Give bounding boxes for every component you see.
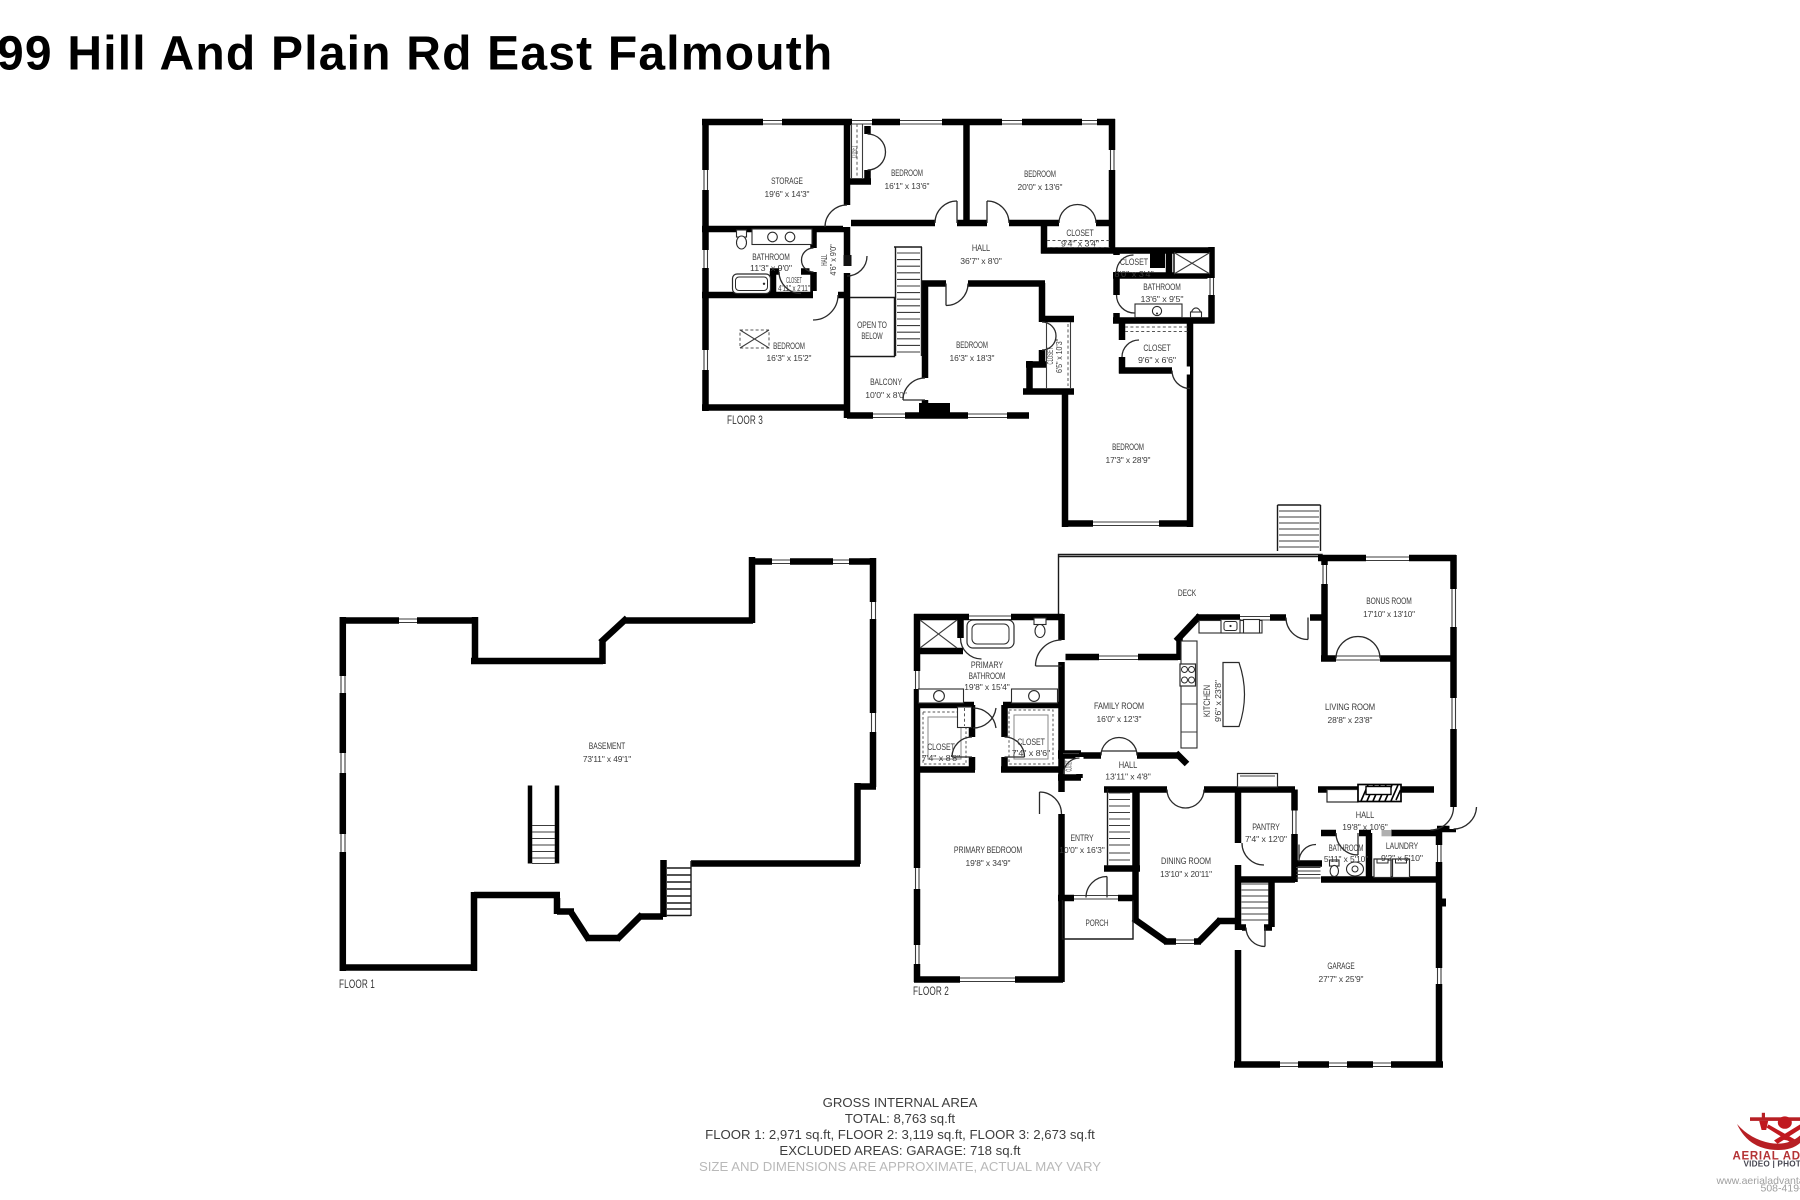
svg-text:17'10" x 13'10": 17'10" x 13'10"	[1363, 609, 1415, 619]
svg-text:5'11" x 5'10": 5'11" x 5'10"	[1324, 854, 1368, 864]
svg-text:7'4" x 8'8": 7'4" x 8'8"	[922, 753, 960, 763]
svg-text:4'6" x 9'0": 4'6" x 9'0"	[828, 244, 838, 275]
svg-text:19'8" x 34'9": 19'8" x 34'9"	[966, 858, 1011, 868]
svg-text:9'6" x 23'8": 9'6" x 23'8"	[1213, 680, 1223, 722]
svg-text:19'8" x 15'4": 19'8" x 15'4"	[964, 682, 1009, 692]
svg-text:CLOSET: CLOSET	[1066, 228, 1094, 238]
svg-text:508-419-61: 508-419-61	[1761, 1183, 1800, 1195]
svg-text:28'8" x 23'8": 28'8" x 23'8"	[1328, 715, 1373, 725]
svg-text:BALCONY: BALCONY	[870, 377, 902, 387]
svg-text:HALL: HALL	[1356, 810, 1374, 820]
svg-text:TOTAL: 8,763 sq.ft: TOTAL: 8,763 sq.ft	[845, 1111, 956, 1126]
svg-text:10'0" x 8'0": 10'0" x 8'0"	[865, 390, 906, 400]
svg-text:13'10" x 20'11": 13'10" x 20'11"	[1160, 869, 1212, 879]
svg-text:19'6" x 14'3": 19'6" x 14'3"	[765, 189, 810, 199]
svg-text:9'2" x 5'10": 9'2" x 5'10"	[1381, 853, 1423, 863]
svg-text:HALL: HALL	[1119, 760, 1137, 770]
svg-text:ENTRY: ENTRY	[1071, 833, 1094, 843]
svg-text:LAUNDRY: LAUNDRY	[1386, 841, 1418, 851]
svg-text:FAMILY ROOM: FAMILY ROOM	[1094, 701, 1144, 711]
svg-text:CLOSET: CLOSET	[1017, 737, 1045, 747]
svg-text:BASEMENT: BASEMENT	[589, 741, 626, 751]
svg-text:8'0" x 3'4": 8'0" x 3'4"	[1114, 269, 1153, 279]
svg-text:27'7" x 25'9": 27'7" x 25'9"	[1319, 974, 1364, 984]
svg-text:PANTRY: PANTRY	[1252, 822, 1280, 832]
svg-text:19'8" x 10'6": 19'8" x 10'6"	[1342, 822, 1387, 832]
svg-text:BONUS ROOM: BONUS ROOM	[1366, 596, 1412, 606]
svg-text:9'4" x 3'4": 9'4" x 3'4"	[1061, 239, 1099, 249]
svg-text:KITCHEN: KITCHEN	[1202, 685, 1212, 717]
svg-text:10'0" x 16'3": 10'0" x 16'3"	[1059, 845, 1104, 855]
svg-text:7'4" x 8'6": 7'4" x 8'6"	[1012, 748, 1050, 758]
svg-text:BEDROOM: BEDROOM	[956, 340, 988, 350]
svg-text:PRIMARY: PRIMARY	[971, 660, 1003, 670]
svg-text:BATHROOM: BATHROOM	[1143, 282, 1181, 292]
svg-text:16'3" x 18'3": 16'3" x 18'3"	[950, 353, 995, 363]
svg-text:BATHROOM: BATHROOM	[969, 671, 1006, 681]
svg-text:11'3" x 9'0": 11'3" x 9'0"	[750, 263, 792, 273]
svg-text:36'7" x 8'0": 36'7" x 8'0"	[960, 256, 1001, 266]
svg-text:13'6" x 9'5": 13'6" x 9'5"	[1141, 294, 1184, 304]
svg-text:PORCH: PORCH	[1086, 918, 1109, 928]
svg-text:PRIMARY BEDROOM: PRIMARY BEDROOM	[954, 845, 1022, 855]
svg-text:BELOW: BELOW	[861, 331, 883, 341]
svg-text:CLOSET: CLOSET	[1064, 761, 1074, 772]
svg-text:DINING ROOM: DINING ROOM	[1161, 856, 1211, 866]
svg-text:BEDROOM: BEDROOM	[891, 168, 923, 178]
svg-text:BATHROOM: BATHROOM	[1329, 843, 1364, 853]
svg-text:20'0" x 13'6": 20'0" x 13'6"	[1018, 182, 1063, 192]
svg-text:73'11" x 49'1": 73'11" x 49'1"	[583, 754, 631, 764]
svg-text:EXCLUDED AREAS: GARAGE: 718 sq: EXCLUDED AREAS: GARAGE: 718 sq.ft	[779, 1143, 1020, 1158]
svg-text:17'3" x 28'9": 17'3" x 28'9"	[1106, 455, 1151, 465]
svg-text:CLOSET: CLOSET	[849, 146, 859, 158]
svg-text:GARAGE: GARAGE	[1327, 961, 1354, 971]
svg-text:GROSS INTERNAL AREA: GROSS INTERNAL AREA	[823, 1095, 978, 1110]
svg-text:16'0" x 12'3": 16'0" x 12'3"	[1097, 714, 1142, 724]
svg-text:BEDROOM: BEDROOM	[773, 341, 805, 351]
svg-text:LIVING ROOM: LIVING ROOM	[1325, 702, 1375, 712]
svg-text:4'11" x 2'11": 4'11" x 2'11"	[778, 283, 810, 293]
svg-text:7'4" x 12'0": 7'4" x 12'0"	[1245, 834, 1287, 844]
svg-text:BEDROOM: BEDROOM	[1112, 442, 1144, 452]
svg-text:13'11" x 4'8": 13'11" x 4'8"	[1105, 772, 1150, 782]
svg-text:SIZE AND DIMENSIONS ARE APPROX: SIZE AND DIMENSIONS ARE APPROXIMATE, ACT…	[699, 1159, 1101, 1174]
svg-text:OPEN TO: OPEN TO	[857, 320, 887, 330]
svg-text:STORAGE: STORAGE	[771, 176, 803, 186]
svg-text:FLOOR 2: FLOOR 2	[913, 986, 949, 998]
svg-text:6'5" x 10'3": 6'5" x 10'3"	[1054, 339, 1064, 373]
svg-text:FLOOR 3: FLOOR 3	[727, 415, 763, 427]
svg-text:BEDROOM: BEDROOM	[1024, 169, 1056, 179]
svg-text:CLOSET: CLOSET	[927, 742, 955, 752]
svg-text:BATHROOM: BATHROOM	[752, 252, 790, 262]
svg-text:DECK: DECK	[1178, 588, 1197, 598]
svg-text:HALL: HALL	[972, 243, 990, 253]
svg-text:16'3" x 15'2": 16'3" x 15'2"	[767, 353, 812, 363]
svg-text:FLOOR 1: FLOOR 1	[339, 979, 375, 991]
svg-text:99 Hill And Plain Rd East Falm: 99 Hill And Plain Rd East Falmouth	[0, 28, 833, 81]
svg-text:CLOSET: CLOSET	[1120, 257, 1149, 267]
svg-text:VIDEO | PHOTOG: VIDEO | PHOTOG	[1744, 1160, 1800, 1169]
svg-text:CLOSET: CLOSET	[1143, 343, 1171, 353]
svg-text:16'1" x 13'6": 16'1" x 13'6"	[885, 181, 930, 191]
svg-text:FLOOR 1: 2,971 sq.ft, FLOOR 2:: FLOOR 1: 2,971 sq.ft, FLOOR 2: 3,119 sq.…	[705, 1127, 1095, 1142]
svg-text:9'6" x 6'6": 9'6" x 6'6"	[1138, 355, 1176, 365]
